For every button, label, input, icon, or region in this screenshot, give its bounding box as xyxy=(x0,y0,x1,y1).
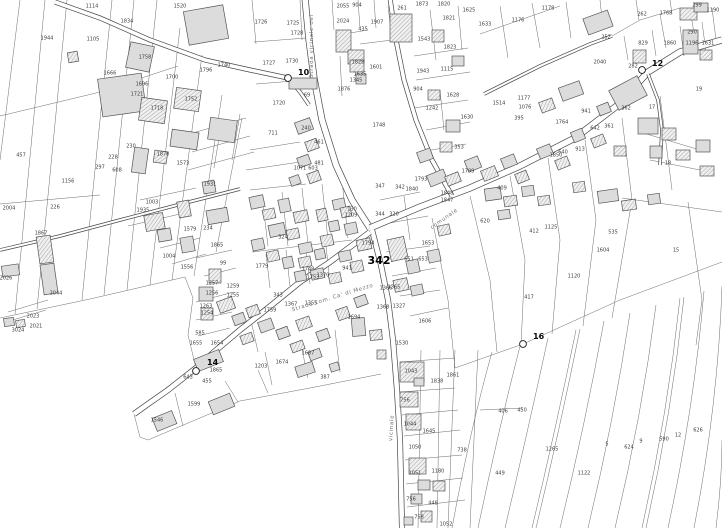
parcel-number-label: 651 xyxy=(404,257,414,263)
survey-point-circle[interactable] xyxy=(520,341,527,348)
building xyxy=(404,517,413,525)
building-hatched xyxy=(676,150,690,160)
building xyxy=(414,378,424,386)
survey-point-circle[interactable] xyxy=(639,67,646,74)
building-hatched xyxy=(440,142,452,152)
parcel-number-label: 1345 xyxy=(350,78,363,84)
building-hatched xyxy=(428,90,440,100)
building xyxy=(180,236,195,253)
parcel-number-label: 1122 xyxy=(578,471,591,477)
parcel-number-label: 626 xyxy=(693,428,703,434)
parcel-number-label: 1242 xyxy=(426,106,439,112)
parcel-number-label: 1931 xyxy=(204,182,217,188)
parcel-number-label: 261 xyxy=(397,6,407,12)
parcel-number-label: 620 xyxy=(480,219,490,225)
parcel-number-label: 1115 xyxy=(441,67,454,73)
parcel-number-label: 361 xyxy=(604,124,614,130)
parcel-number-label: 1687 xyxy=(302,351,315,357)
parcel-number-label: 1759 xyxy=(264,308,277,314)
building xyxy=(208,117,238,143)
building-hatched xyxy=(503,195,517,207)
building xyxy=(3,317,14,326)
survey-point-circle[interactable] xyxy=(285,75,292,82)
parcel-number-label: 387 xyxy=(320,375,330,381)
parcel-number-label: 1725 xyxy=(287,21,300,27)
parcel-number-label: 1674 xyxy=(276,360,289,366)
parcel-number-label: 1876 xyxy=(338,87,351,93)
parcel-number-label: 252 xyxy=(601,35,611,41)
parcel-number-label: 2024 xyxy=(337,19,350,25)
building-hatched xyxy=(572,181,585,193)
parcel-number-label: 1748 xyxy=(302,267,315,273)
survey-point-label: 16 xyxy=(533,332,545,341)
parcel-number-label: 1828 xyxy=(352,60,365,66)
parcel-number-label: 1796 xyxy=(200,68,213,74)
parcel-number-label: 1125 xyxy=(545,225,558,231)
parcel-number-label: 1156 xyxy=(62,179,75,185)
parcel-number-label: 9 xyxy=(639,439,642,445)
parcel-number-label: 1726 xyxy=(255,20,268,26)
parcel-number-label: 1556 xyxy=(181,265,194,271)
parcel-number-label: 1370 xyxy=(317,273,330,279)
building xyxy=(452,56,464,66)
parcel-number-label: 450 xyxy=(517,408,527,414)
parcel-number-label: 1190 xyxy=(707,8,720,14)
parcel-number-label: 457 xyxy=(16,153,26,159)
parcel-number-label: 1003 xyxy=(146,200,159,206)
parcel-number-label: 412 xyxy=(529,229,539,235)
parcel-number-label: 455 xyxy=(202,379,212,385)
survey-point-label: 10 xyxy=(298,68,310,77)
parcel-number-label: 409 xyxy=(497,186,507,192)
parcel-number-label: 344 xyxy=(375,212,385,218)
parcel-number-label: 3024 xyxy=(12,328,25,334)
building xyxy=(314,248,326,260)
parcel-number-label: 353 xyxy=(454,145,464,151)
parcel-number-label: 1720 xyxy=(273,101,286,107)
parcel-number-label: 1606 xyxy=(419,319,432,325)
building-hatched xyxy=(320,234,334,247)
parcel-number-label: 1633 xyxy=(479,22,492,28)
parcel-number-label: 1873 xyxy=(416,2,429,8)
parcel-number-label: 1051 xyxy=(409,471,422,477)
building-hatched xyxy=(67,51,79,63)
building xyxy=(183,5,228,45)
building xyxy=(497,209,510,220)
parcel-number-label: 1630 xyxy=(461,115,474,121)
parcel-number-label: 1848 xyxy=(441,191,454,197)
building xyxy=(170,129,199,150)
parcel-number-label: 1840 xyxy=(406,187,419,193)
parcel-number-label: 1530 xyxy=(396,341,409,347)
parcel-number-label: 738 xyxy=(457,448,467,454)
parcel-number-label: 449 xyxy=(495,471,505,477)
building-hatched xyxy=(293,210,309,224)
parcel-number-label: 69 xyxy=(304,93,310,99)
parcel-number-label: 1178 xyxy=(542,6,555,12)
parcel-number-label: 1907 xyxy=(371,20,384,26)
parcel-number-label: 461 xyxy=(314,140,324,146)
parcel-number-label: 1865 xyxy=(211,243,224,249)
building xyxy=(418,480,430,490)
building-hatched xyxy=(144,212,165,231)
parcel-number-label: 1599 xyxy=(188,402,201,408)
building xyxy=(289,78,317,89)
parcel-number-label: 342 xyxy=(395,185,405,191)
building xyxy=(344,222,358,235)
parcel-number-label: 941 xyxy=(581,109,591,115)
parcel-number-label: 1861 xyxy=(447,373,460,379)
parcel-number-label: 1799 xyxy=(462,169,475,175)
parcel-number-label: 343 xyxy=(273,293,283,299)
parcel-number-label: 290 xyxy=(687,30,697,36)
building xyxy=(696,140,710,152)
building-hatched xyxy=(286,228,300,240)
parcel-number-label: 230 xyxy=(126,144,136,150)
parcel-number-label: 226 xyxy=(50,205,60,211)
parcel-number-label: 1821 xyxy=(443,16,456,22)
building xyxy=(251,238,265,251)
street-name-label: Strada vicinale del xyxy=(309,14,315,77)
parcel-number-label: 829 xyxy=(638,41,648,47)
parcel-number-label: 535 xyxy=(608,230,618,236)
parcel-number-label: 1043 xyxy=(405,369,418,375)
parcel-number-label: 1052 xyxy=(440,522,453,528)
cadastral-map-canvas[interactable]: 1114183419441105152017581666170016961721… xyxy=(0,0,722,528)
parcel-number-label: 1867 xyxy=(35,231,48,237)
parcel-number-label: 17 xyxy=(649,105,655,111)
parcel-number-label: 941 xyxy=(342,266,352,272)
parcel-number-label: 1944 xyxy=(41,36,54,42)
parcel-number-label: 15 xyxy=(673,248,679,254)
parcel-number-label: 1180 xyxy=(432,469,445,475)
highlighted-parcel-label: 342 xyxy=(368,254,391,267)
parcel-number-label: 1254 xyxy=(201,311,214,317)
building-hatched xyxy=(537,195,550,206)
parcel-number-label: 19 xyxy=(696,87,702,93)
building xyxy=(410,284,424,296)
parcel-number-label: 1740 xyxy=(218,63,231,69)
parcel-number-label: 12 xyxy=(675,433,681,439)
building xyxy=(597,189,618,204)
parcel-number-label: 1255 xyxy=(227,293,240,299)
building-hatched xyxy=(370,329,383,340)
parcel-number-label: 1265 xyxy=(546,447,559,453)
parcel-number-label: 1847 xyxy=(441,198,454,204)
parcel-number-label: 585 xyxy=(195,331,205,337)
parcel-number-label: 711 xyxy=(268,131,278,137)
building-hatched xyxy=(633,50,646,63)
parcel-number-label: 756 xyxy=(400,398,410,404)
parcel-number-label: 1794 xyxy=(362,241,375,247)
building-hatched xyxy=(177,200,192,218)
parcel-number-label: 603 xyxy=(308,166,318,172)
parcel-number-label: 1758 xyxy=(139,55,152,61)
parcel-number-label: 299 xyxy=(692,3,702,9)
parcel-number-label: 1546 xyxy=(151,418,164,424)
parcel-number-label: 1878 xyxy=(157,152,170,158)
building-hatched xyxy=(433,481,445,491)
parcel-number-label: 1700 xyxy=(166,75,179,81)
parcel-number-label: 234 xyxy=(203,226,213,232)
survey-point-label: 14 xyxy=(207,358,219,367)
parcel-number-label: 2021 xyxy=(30,324,43,330)
building-hatched xyxy=(266,250,280,262)
building-hatched xyxy=(377,350,386,359)
parcel-number-label: 1752 xyxy=(185,97,198,103)
parcel-number-label: 1209 xyxy=(345,213,358,219)
parcel-number-label: 1779 xyxy=(256,264,269,270)
parcel-number-label: 1004 xyxy=(163,254,176,260)
parcel-number-label: 5 xyxy=(605,442,608,448)
parcel-number-label: 1860 xyxy=(664,41,677,47)
parcel-number-label: 1935 xyxy=(137,208,150,214)
parcel-number-label: 1834 xyxy=(121,19,134,25)
parcel-number-label: 1730 xyxy=(286,59,299,65)
parcel-number-label: 1666 xyxy=(104,71,117,77)
parcel-number-label: 1573 xyxy=(177,161,190,167)
parcel-number-label: 2055 xyxy=(337,4,350,10)
building-hatched xyxy=(328,272,342,284)
parcel-number-label: 758 xyxy=(414,515,424,521)
parcel-number-label: 1105 xyxy=(87,37,100,43)
parcel-number-label: 1865 xyxy=(210,368,223,374)
parcel-number-label: 1823 xyxy=(444,45,457,51)
parcel-number-label: 1601 xyxy=(370,65,383,71)
parcel-number-label: 1203 xyxy=(255,364,268,370)
parcel-number-label: 1044 xyxy=(404,422,417,428)
parcel-number-label: 1327 xyxy=(393,304,406,310)
building-hatched xyxy=(336,30,351,52)
parcel-number-label: 642 xyxy=(590,126,600,132)
building-hatched xyxy=(614,146,626,156)
parcel-number-label: 1604 xyxy=(597,248,610,254)
parcel-number-label: 756 xyxy=(406,497,416,503)
parcel-number-label: 282 xyxy=(628,64,638,70)
parcel-number-label: 1543 xyxy=(418,37,431,43)
parcel-number-label: 2026 xyxy=(0,276,12,282)
parcel-number-label: 347 xyxy=(375,184,385,190)
parcel-number-label: 362 xyxy=(621,106,631,112)
parcel-number-label: 1257 xyxy=(206,281,219,287)
parcel-number-label: 1176 xyxy=(512,18,525,24)
parcel-number-label: 624 xyxy=(624,445,634,451)
parcel-number-label: 262 xyxy=(637,12,647,18)
parcel-number-label: 1368 xyxy=(377,305,390,311)
parcel-number-label: 99 xyxy=(220,261,226,267)
parcel-number-label: 1120 xyxy=(568,274,581,280)
parcel-number-label: 1645 xyxy=(423,429,436,435)
parcel-number-label: 1628 xyxy=(447,93,460,99)
parcel-number-label: 2004 xyxy=(3,206,16,212)
building xyxy=(446,120,460,132)
building xyxy=(328,220,340,232)
building-hatched xyxy=(662,128,676,140)
parcel-number-label: 643 xyxy=(183,375,193,381)
parcel-number-label: 1514 xyxy=(493,101,506,107)
parcel-number-label: 1748 xyxy=(373,123,386,129)
parcel-number-label: 1655 xyxy=(190,341,203,347)
parcel-number-label: 1820 xyxy=(438,2,451,8)
parcel-number-label: 297 xyxy=(95,165,105,171)
parcel-number-label: 913 xyxy=(575,147,585,153)
building-hatched xyxy=(316,208,328,222)
parcel-number-label: 1696 xyxy=(136,82,149,88)
parcel-number-label: 1728 xyxy=(291,31,304,37)
parcel-number-label: 590 xyxy=(659,437,669,443)
parcel-number-label: 2040 xyxy=(594,60,607,66)
parcel-number-label: 320 xyxy=(389,212,399,218)
parcel-number-label: 1943 xyxy=(417,69,430,75)
building-hatched xyxy=(700,50,712,60)
parcel-number-label: 1256 xyxy=(206,291,219,297)
building xyxy=(638,118,658,134)
parcel-number-label: 1653 xyxy=(422,241,435,247)
parcel-number-label: 1631 xyxy=(702,41,715,47)
building xyxy=(647,193,660,205)
building xyxy=(338,250,352,262)
parcel-number-label: 435 xyxy=(358,27,368,33)
building-hatched xyxy=(350,260,364,273)
building xyxy=(427,249,441,263)
parcel-number-label: 608 xyxy=(112,168,122,174)
parcel-number-label: 417 xyxy=(524,295,534,301)
survey-point-label: 12 xyxy=(652,59,663,68)
parcel-number-label: 1625 xyxy=(463,8,476,14)
parcel-number-label: 324 xyxy=(278,235,288,241)
survey-point-circle[interactable] xyxy=(193,368,200,375)
parcel-number-label: 1177 xyxy=(518,96,531,102)
building-hatched xyxy=(700,166,714,176)
building xyxy=(249,195,265,210)
building-hatched xyxy=(262,208,276,220)
parcel-number-label: 1520 xyxy=(174,4,187,10)
parcel-number-label: 653 xyxy=(418,257,428,263)
building xyxy=(282,256,294,269)
parcel-number-label: 1721 xyxy=(131,92,144,98)
parcel-number-label: 395 xyxy=(514,116,524,122)
parcel-number-label: 1196 xyxy=(686,41,699,47)
parcel-number-label: 1259 xyxy=(227,284,240,290)
building-hatched xyxy=(390,14,412,42)
parcel-number-label: 1076 xyxy=(519,105,532,111)
parcel-number-label: 406 xyxy=(498,409,508,415)
parcel-number-label: 1793 xyxy=(415,177,428,183)
parcel-number-label: 228 xyxy=(108,155,118,161)
parcel-number-label: 18 xyxy=(665,161,671,167)
parcel-number-label: 1838 xyxy=(431,379,444,385)
parcel-number-label: 1263 xyxy=(200,304,213,310)
building xyxy=(131,147,148,174)
parcel-number-label: 904 xyxy=(413,87,423,93)
parcel-number-label: 240 xyxy=(301,126,311,132)
parcel-number-label: 1727 xyxy=(263,61,276,67)
building xyxy=(650,146,662,158)
parcel-number-label: 1114 xyxy=(86,4,99,10)
building xyxy=(157,228,172,242)
parcel-number-label: 1850 xyxy=(550,153,563,159)
building-hatched xyxy=(621,199,636,211)
parcel-number-label: 2023 xyxy=(27,314,40,320)
parcel-number-label: 1764 xyxy=(556,120,569,126)
parcel-number-label: 1718 xyxy=(151,106,164,112)
parcel-number-label: 1050 xyxy=(409,445,422,451)
building xyxy=(278,198,291,213)
cadastral-map-page: 1114183419441105152017581666170016961721… xyxy=(0,0,722,528)
parcel-number-label: 2044 xyxy=(50,291,63,297)
parcel-number-label: 904 xyxy=(352,3,362,9)
parcel-number-label: 1071 xyxy=(294,166,307,172)
parcel-number-label: 1579 xyxy=(184,227,197,233)
parcel-number-label: 1654 xyxy=(211,341,224,347)
parcel-number-label: 448 xyxy=(428,501,438,507)
building-hatched xyxy=(16,319,26,327)
parcel-number-label: 1366 xyxy=(380,286,393,292)
parcel-number-label: 1694 xyxy=(348,315,361,321)
parcel-number-label: 1768 xyxy=(660,11,673,17)
building xyxy=(521,185,534,197)
building-hatched xyxy=(432,30,444,42)
